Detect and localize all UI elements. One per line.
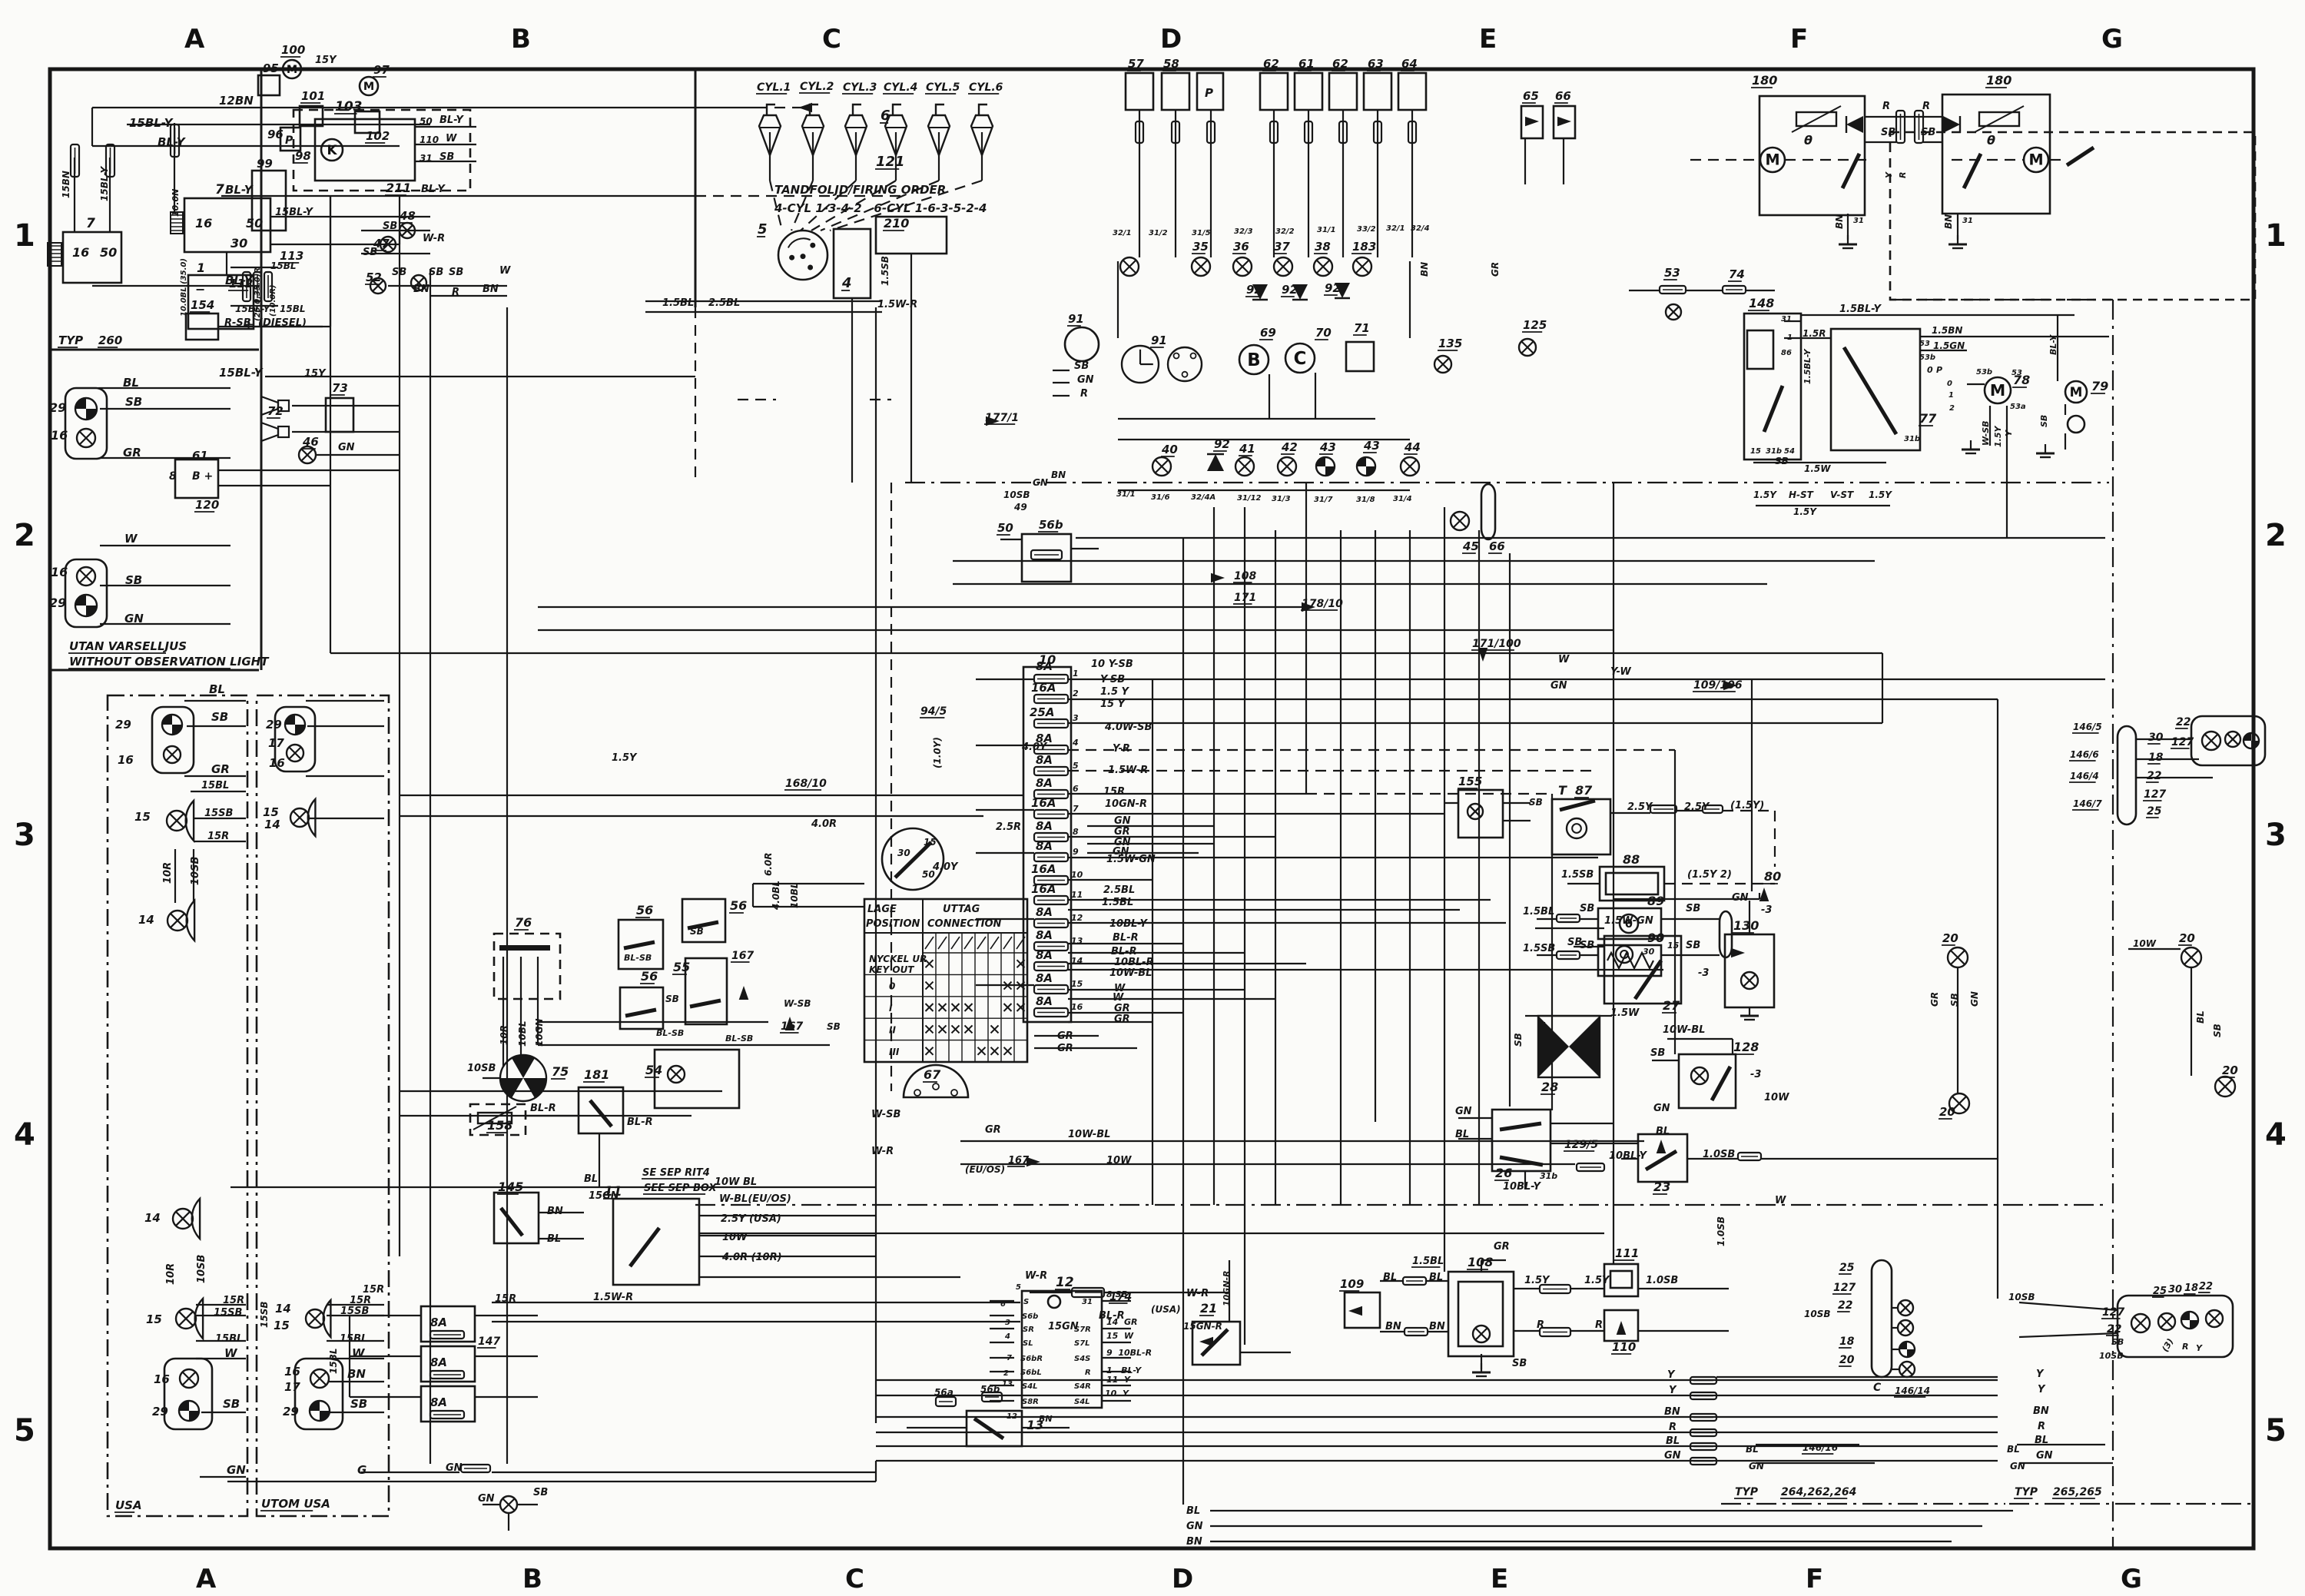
diagram-label: 15SB (259, 1302, 270, 1329)
diagram-label: 31b (1766, 447, 1782, 456)
diagram-label: 31 (1962, 217, 1973, 225)
grid-label-top-E: E (1479, 24, 1497, 55)
diagram-label: 65 (1523, 89, 1539, 103)
diagram-label: R (1085, 1369, 1091, 1377)
diagram-label: P (1936, 365, 1942, 375)
diagram-label: GR (1494, 1241, 1510, 1253)
circle-component (2068, 416, 2084, 433)
diagram-label: TYP (2015, 1486, 2038, 1498)
arrow-icon (1199, 1337, 1213, 1347)
diagram-label: 8A (1036, 928, 1053, 942)
diagram-label: SEE SEP BOX (644, 1183, 717, 1194)
diagram-label: 7 (1007, 1354, 1012, 1362)
diagram-label: SB (1567, 937, 1582, 948)
diagram-label: 41 (1239, 442, 1255, 456)
diagram-label: CYL.3 (843, 81, 877, 94)
diagram-label: 87 (1575, 783, 1593, 798)
diagram-label: 15R (223, 1295, 244, 1306)
diagram-label: 8 (169, 470, 177, 483)
diagram-label: 15 (146, 1312, 162, 1326)
diagram-label: 18 (2148, 752, 2164, 764)
diagram-label: 66 (1555, 89, 1571, 103)
component-box (186, 314, 218, 340)
diagram-label: SB (1580, 903, 1594, 914)
diagram-label: W (352, 1346, 366, 1360)
diagram-label: Y (1667, 1369, 1676, 1381)
diagram-label: 11 (604, 1184, 622, 1199)
diagram-label: 171 (1234, 592, 1256, 604)
diagram-label: 2 (1949, 404, 1955, 413)
diagram-label: 16A (1031, 796, 1056, 810)
diagram-label: 167 (781, 1020, 803, 1033)
diagram-label: GR (1114, 826, 1130, 838)
diagram-label: BN (2033, 1405, 2049, 1417)
diagram-label: 76 (515, 915, 532, 930)
diagram-label: 108 (1468, 1255, 1493, 1269)
diagram-label: 15 (274, 1319, 290, 1332)
diagram-label: 15R (495, 1293, 516, 1305)
diagram-label: BL-R (627, 1117, 653, 1128)
diagram-label: 74 (1729, 267, 1745, 281)
diagram-label: 50 (420, 116, 433, 127)
diagram-label: V-ST (1830, 489, 1854, 500)
arrow-icon (1657, 1140, 1667, 1153)
bulb-filled-icon (1907, 1349, 1915, 1357)
component-box (613, 1199, 699, 1285)
diagram-label: 13 (1071, 936, 1083, 946)
diagram-label: 9 10BL-R (1106, 1348, 1152, 1358)
diagram-label: W-SB (1981, 420, 1991, 446)
diagram-label: 10SB (2008, 1292, 2035, 1302)
diagram-label: 15 W (1106, 1331, 1134, 1341)
diagram-label: 26 (1495, 1166, 1512, 1180)
diagram-label: 92 (1214, 437, 1230, 451)
diagram-label: R (1595, 1319, 1603, 1331)
diagram-label: GN (227, 1463, 246, 1477)
diagram-label: 2.5Y (USA) (721, 1213, 781, 1225)
diagram-label: 50 (100, 245, 117, 260)
diagram-label: SB (1513, 1033, 1524, 1047)
diagram-label: 43 (1363, 439, 1380, 453)
grid-label-bottom-A: A (196, 1564, 217, 1594)
diagram-label: 72 (267, 404, 284, 418)
diagram-label: 125 (1523, 318, 1547, 332)
diagram-label: 20 (2179, 931, 2195, 945)
arrow-icon (1557, 117, 1571, 127)
grid-label-right-4: 4 (2265, 1117, 2287, 1153)
arrow-icon (1348, 1306, 1362, 1316)
diagram-label: 56 (730, 898, 747, 913)
diagram-label: 15 (924, 837, 937, 848)
diagram-label: 61 (192, 449, 208, 463)
diagram-label: 32/2 (1275, 227, 1295, 236)
schematic-page: KMMBCMMMMθ LAGEPOSITIONUTTAGCONNECTIONNY… (0, 0, 2305, 1596)
diagram-label: BN (1186, 1536, 1202, 1548)
diagram-label: 64 (1401, 57, 1418, 71)
diagram-label: 1.0SB (1716, 1216, 1726, 1246)
grid-label-top-D: D (1160, 24, 1182, 55)
arrow-icon (1211, 573, 1225, 583)
diagram-label: 8A (1036, 819, 1053, 833)
diagram-label: 1.5BL (662, 297, 694, 309)
diagram-label: 61 (1298, 57, 1315, 71)
diagram-label: BL (1746, 1444, 1759, 1455)
diagram-label: 25 (2153, 1286, 2167, 1297)
diagram-label: Y (2036, 1369, 2045, 1380)
diagram-label: SB (223, 1397, 240, 1411)
diagram-label: 29 (283, 1405, 299, 1418)
diagram-label: 22 (1838, 1299, 1852, 1312)
diagram-label: 31/2 (1149, 229, 1168, 237)
diagram-label: 14 (144, 1211, 161, 1225)
table-terminal-mark (951, 937, 960, 949)
arrow-icon (798, 103, 812, 113)
bulb-filled-icon (75, 398, 86, 409)
diagram-label: 1.5BN (1932, 325, 1962, 336)
diagram-label: S7L (1074, 1339, 1090, 1348)
diagram-label: 30 (2168, 1284, 2182, 1296)
diagram-label: 1.5W-GN (1106, 854, 1156, 865)
diagram-label: BN (1039, 1414, 1053, 1424)
diagram-label: Y-W (1610, 666, 1631, 678)
diagram-label: SB (392, 267, 406, 278)
sensor-dome-icon (951, 1090, 957, 1096)
diagram-label: 15R (1103, 786, 1125, 798)
component-box (1604, 1264, 1638, 1296)
diagram-label: -3 (1698, 967, 1709, 979)
diagram-label: 8 (1073, 827, 1079, 837)
resistor-bar-icon (1975, 106, 2024, 132)
diode-icon (1207, 454, 1224, 471)
diagram-label: 14 (1071, 956, 1083, 966)
diagram-label: 15SB (204, 808, 233, 819)
sender-icon (1191, 353, 1196, 359)
diagram-label: GN (1969, 991, 1980, 1007)
diagram-label: BL (1656, 1126, 1670, 1137)
diagram-label: 4.0Y (932, 861, 959, 873)
diagram-label: S4R (1074, 1382, 1091, 1391)
diagram-label: SB (1881, 127, 1895, 138)
diagram-label: (10.0R) (269, 284, 277, 317)
diagram-label: 2.5Y (1684, 801, 1710, 813)
diode-icon (1943, 116, 1960, 133)
diagram-label: 1.5BL (1412, 1256, 1444, 1267)
diagram-label: 2 (1073, 689, 1079, 698)
diagram-label: GR (985, 1124, 1001, 1136)
diode-icon (1943, 116, 1960, 133)
diagram-label: S6b (1022, 1312, 1038, 1321)
diagram-label: -3 (1761, 904, 1772, 916)
diagram-label: 46 (302, 435, 319, 449)
diagram-label: 8A (430, 1355, 447, 1369)
component-box (1610, 1271, 1632, 1288)
wire-layer (50, 69, 2255, 1548)
diagram-label: BL (2035, 1435, 2048, 1446)
diagram-label: 71 (1354, 321, 1370, 335)
grid-label-top-B: B (511, 24, 531, 55)
diagram-label: T (1558, 783, 1567, 798)
arrow-icon (1617, 1321, 1627, 1335)
switch-lever (1844, 347, 1896, 434)
diagram-label: 3 (1073, 713, 1079, 723)
table-header: LAGE (867, 904, 897, 915)
switch-lever (1964, 154, 1981, 188)
diagram-label: 129/5 (1564, 1139, 1598, 1151)
diagram-label: 56b (980, 1384, 1000, 1395)
diagram-label: R (1882, 101, 1890, 112)
diagram-label: 10SB (467, 1063, 496, 1074)
diagram-label: BN (413, 284, 429, 295)
diagram-label: 8A (1036, 753, 1053, 767)
diagram-label: 49 (1013, 502, 1027, 513)
diagram-label: 52 (366, 270, 382, 284)
diagram-label: S8R (1022, 1398, 1039, 1406)
diagram-label: 16A (1031, 882, 1056, 896)
table-row-label: KEY OUT (869, 964, 914, 975)
bulb-filled-icon (2251, 741, 2259, 748)
distributor-icon (789, 255, 794, 260)
diagram-label: SE SEP RIT4 (642, 1167, 710, 1179)
diagram-label: 15Y (315, 55, 337, 66)
diagram-label: 112 (229, 277, 253, 290)
diagram-label: BL-SB (725, 1034, 753, 1044)
grid-label-left-5: 5 (14, 1413, 35, 1448)
diagram-label: GR (1057, 1030, 1073, 1042)
diagram-label: BN (1051, 470, 1066, 480)
diagram-label: − (195, 282, 205, 297)
component-box (834, 229, 871, 298)
diagram-label: 15BL (328, 1349, 339, 1375)
diagram-label: 20 (2222, 1063, 2238, 1077)
diagram-label: 32/1 (1386, 224, 1405, 233)
component-box (1162, 73, 1189, 110)
diagram-label: 70 (1315, 326, 1332, 340)
diagram-label: 10BL (789, 883, 800, 909)
diagram-label: 1.5SB (880, 256, 890, 286)
diagram-label: 15BL-Y (275, 207, 314, 218)
diagram-label: 2.5BL (708, 297, 740, 309)
arrow-icon (798, 103, 812, 113)
diagram-label: 146/5 (2073, 722, 2102, 732)
component-box (1458, 1282, 1503, 1346)
diagram-label: GR (1114, 1014, 1130, 1025)
diagram-label: 36 (1233, 240, 1249, 254)
diagram-label: 1.5W-R (593, 1292, 633, 1303)
diagram-label: 1.5SB (1561, 869, 1594, 881)
diagram-label: 31b (1540, 1171, 1557, 1181)
diagram-label: SB (2111, 1337, 2124, 1347)
diagram-label: 15 Y (1100, 698, 1126, 710)
diagram-label: 10 Y-SB (1091, 659, 1133, 670)
diagram-label: S4L (1074, 1398, 1090, 1406)
diagram-label: SL (1023, 1339, 1033, 1348)
diagram-label: 102 (366, 129, 390, 143)
grid-label-left-4: 4 (14, 1117, 35, 1153)
diagram-label: 42 (1281, 440, 1298, 454)
lamp-housing (2118, 726, 2136, 825)
diagram-label: W-R (871, 1146, 894, 1157)
diagram-label: 1.5BL (1523, 906, 1554, 917)
diagram-label: 180 (1986, 73, 2011, 88)
component-box (655, 1050, 739, 1108)
diagram-label: 53b (1976, 368, 1992, 377)
bulb-filled-icon (320, 1411, 330, 1421)
diagram-label: 12BN (219, 94, 254, 108)
diagram-label: 29 (152, 1405, 168, 1418)
grid-label-top-G: G (2101, 24, 2123, 55)
diagram-label: 15R (363, 1284, 384, 1296)
arrow-icon (1525, 117, 1539, 127)
arrow-icon (739, 986, 749, 1000)
diagram-label: BL-Y (439, 114, 464, 126)
diagram-label: 80 (1764, 869, 1781, 884)
bulb-filled-icon (75, 595, 86, 606)
bulb-filled-icon (1357, 457, 1366, 466)
diagram-label: 15 (1071, 979, 1083, 989)
diagram-label: 30 (1643, 947, 1655, 957)
diagram-label: CYL.2 (800, 81, 834, 93)
diagram-label: 7 (215, 182, 224, 197)
diagram-label: 31 (1853, 217, 1864, 225)
diagram-label: SB (211, 710, 228, 724)
diagram-label: BL (2195, 1010, 2206, 1024)
diagram-label: 167 (1008, 1155, 1030, 1166)
diagram-label: SB (2212, 1024, 2223, 1037)
diagram-label: 25A (1030, 705, 1054, 719)
diode-icon (1846, 116, 1863, 133)
diagram-label: 135 (1438, 337, 1462, 350)
diagram-label: W-R (1186, 1288, 1209, 1299)
grid-label-right-5: 5 (2265, 1413, 2287, 1448)
component-box (421, 1386, 475, 1422)
circle-component (1048, 1296, 1060, 1308)
diagram-label: 146/16 (1803, 1442, 1838, 1453)
diagram-label: 88 (1623, 852, 1640, 867)
circle-letter: M (363, 81, 374, 93)
diagram-label: 31b (1904, 435, 1920, 443)
diagram-label: P (1205, 86, 1213, 100)
diode-icon (1846, 116, 1863, 133)
diagram-label: SB (1686, 903, 1700, 914)
diagram-label: (1.0Y) (932, 737, 943, 768)
diagram-label: 8A (1036, 776, 1053, 790)
diagram-label: TYP (1735, 1486, 1759, 1498)
diagram-label: 121 (876, 154, 905, 170)
diagram-label: GN (446, 1462, 463, 1474)
diagram-label: W (1113, 992, 1124, 1004)
diagram-label: 35 (1192, 240, 1209, 254)
diagram-label: BN (1664, 1406, 1680, 1418)
diagram-label: 20 (1939, 1105, 1955, 1119)
diagram-label: 99 (257, 157, 273, 171)
diagram-label: 260 (98, 333, 122, 347)
switch-lever (1646, 1151, 1677, 1170)
diagram-label: 10 Y (1105, 1389, 1129, 1399)
fan-icon (500, 1078, 523, 1098)
diagram-label: 8A (430, 1316, 447, 1329)
diagram-label: 10GN (534, 1018, 545, 1047)
diagram-label: 15BL-Y (129, 116, 174, 130)
diagram-label: 110 (420, 134, 439, 145)
grid-label-right-3: 3 (2265, 818, 2287, 853)
diagram-label: Y (2196, 1343, 2203, 1353)
diagram-label: 63 (1368, 57, 1384, 71)
diagram-label: 10BL-Y (1109, 918, 1149, 930)
diagram-label: 14 GR (1106, 1317, 1137, 1327)
diagram-label: 8A (1036, 659, 1053, 673)
grid-label-bottom-E: E (1491, 1564, 1508, 1594)
grid-label-top-A: A (184, 24, 205, 55)
diagram-label: 10W-BL (1068, 1129, 1110, 1140)
diagram-label: 210 (884, 216, 909, 231)
diagram-label: 91 (1068, 312, 1084, 326)
switch-lever (1712, 1067, 1730, 1100)
diagram-label: SB (125, 573, 142, 587)
diagram-label: 16 (72, 245, 89, 260)
diagram-label: CYL.1 (757, 81, 791, 94)
diagram-label: 15BL (270, 260, 297, 271)
diagram-label: GR (123, 446, 141, 460)
diagram-label: GR (1114, 1003, 1130, 1014)
diagram-label: BL-Y (421, 184, 446, 195)
bulb-filled-icon (2190, 1320, 2198, 1329)
diagram-label: 127 (2171, 736, 2194, 748)
diagram-label: GN (1550, 680, 1567, 692)
diagram-label: 58 (1163, 57, 1179, 71)
diagram-label: 10SB (1003, 489, 1030, 500)
component-box (1747, 330, 1773, 369)
diagram-label: UTAN VARSELLJUS (69, 639, 187, 653)
diagram-label: 12 (1071, 913, 1083, 923)
diagram-label: 211 (386, 181, 411, 195)
lighter-icon (1616, 946, 1633, 963)
switch-lever (625, 1010, 656, 1016)
diagram-label: BL-Y (158, 135, 187, 149)
diagram-label: 29 (266, 718, 282, 732)
diagram-label: 15 (1667, 941, 1680, 951)
diagram-label: 10W (2133, 938, 2157, 949)
component-box (1346, 342, 1374, 371)
diagram-label: 146/7 (2073, 798, 2102, 809)
diagram-label: 10SB (2099, 1351, 2124, 1361)
component-box (1295, 73, 1322, 110)
diagram-label: 53 (2011, 369, 2022, 377)
grid-label-left-1: 1 (14, 218, 35, 254)
diagram-label: GN (1653, 1103, 1670, 1114)
diagram-label: GN (338, 442, 355, 453)
diagram-label: 50 (922, 869, 935, 880)
diagram-label: 10BL (517, 1021, 528, 1047)
diagram-label: GN (2010, 1461, 2025, 1472)
diagram-label: 2.5Y (1627, 801, 1653, 813)
diagram-label: GN (1077, 374, 1094, 386)
diagram-label: 18 (1839, 1336, 1855, 1348)
diagram-label: WITHOUT OBSERVATION LIGHT (69, 655, 270, 669)
diagram-label: SB (429, 267, 443, 278)
diagram-label: SB (1074, 360, 1089, 372)
bulb-filled-icon (1899, 1342, 1907, 1349)
diagram-label: R (1922, 101, 1930, 112)
diagram-label: 20 (1839, 1354, 1855, 1366)
spark-plug-icon (767, 105, 775, 115)
bulb-filled-icon (1366, 466, 1375, 476)
diagram-label: BN (1834, 214, 1845, 229)
diagram-label: 92 (1246, 283, 1262, 297)
wire (2019, 1333, 2118, 1337)
circle-letter: M (2070, 384, 2083, 400)
diagram-label: 56 (636, 903, 653, 917)
diagram-label: 4.0R (811, 818, 837, 830)
